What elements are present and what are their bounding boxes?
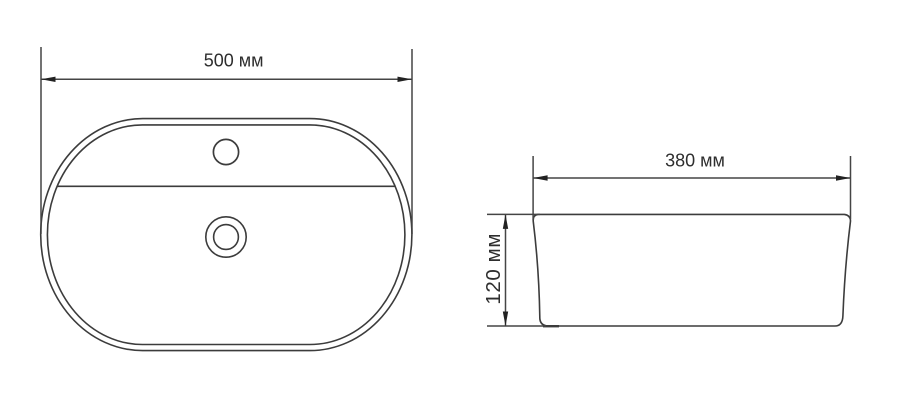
svg-text:500 мм: 500 мм [204, 51, 264, 71]
svg-text:120 мм: 120 мм [482, 233, 505, 305]
svg-text:380 мм: 380 мм [665, 151, 725, 171]
